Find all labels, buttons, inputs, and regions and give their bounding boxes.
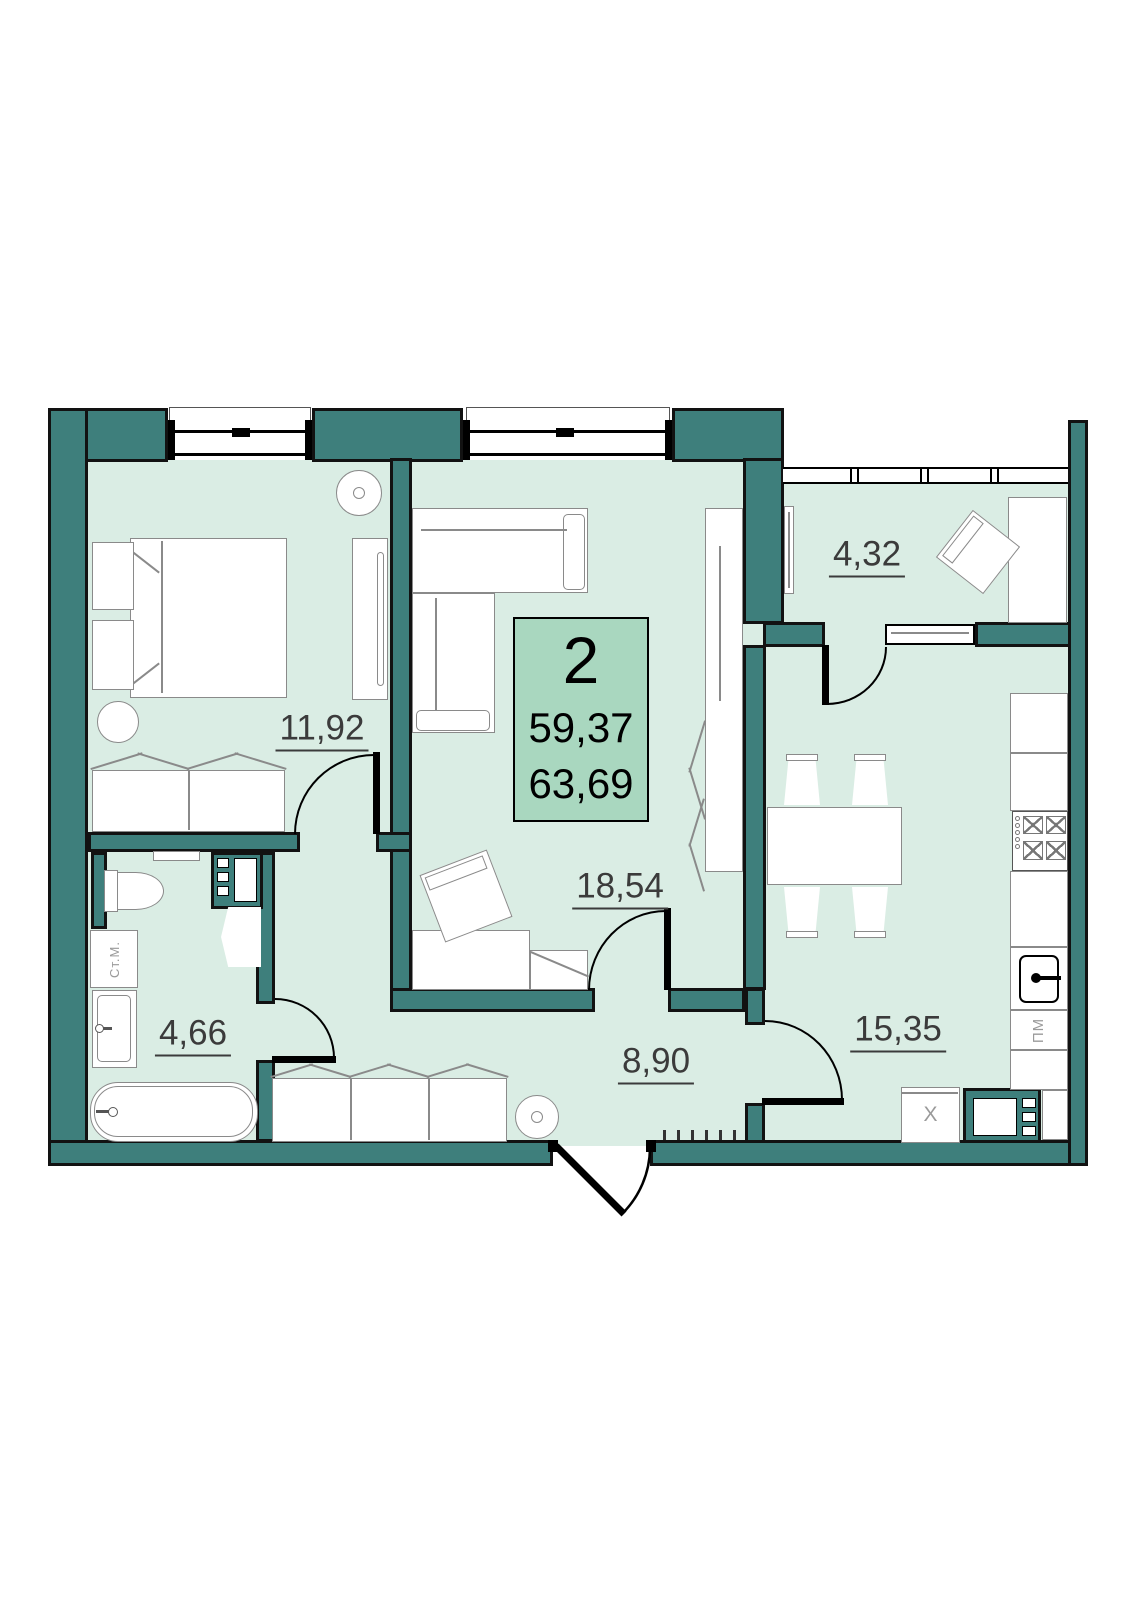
vent-opening [1022,1112,1036,1122]
dishwasher: ПМ [1010,1010,1068,1050]
outer-wall-bottom-left [48,1140,553,1166]
vent-shaft-kitchen [963,1088,1041,1143]
entrance-door-leaf [556,1146,624,1214]
outer-wall-bottom-right [650,1140,1087,1166]
detail-line [421,529,567,531]
glazing-mullion [920,467,922,484]
vent-opening [217,872,229,882]
sofa-horizontal [412,508,588,593]
window-jamb [463,420,470,460]
kitchen-cabinet [1042,1090,1068,1140]
entrance-jamb [548,1140,558,1152]
hallway-wardrobe [272,1078,507,1142]
bathtub-faucet [108,1107,118,1117]
wardrobe-chevron [92,752,188,770]
kitchen-cabinet [1010,1050,1068,1090]
detail-line [891,632,969,634]
nightstand [92,542,134,610]
desk-extension [530,950,588,990]
dining-chair [852,757,888,805]
desk [412,930,530,990]
nightstand [92,620,134,690]
glazing-mullion [927,467,929,484]
window-frame-line [175,453,305,456]
sink-faucet-stem [103,1027,112,1030]
total-area-value: 63,69 [528,763,633,805]
stove-burner [1023,841,1043,860]
sofa-armrest [416,710,490,731]
vent-panel [234,858,257,902]
threshold-tick [733,1130,736,1140]
stove-knob [1015,823,1020,828]
outer-wall-top-right [672,408,784,462]
wall-balcony-kitchen-left [763,622,825,647]
bedroom-door-leaf [373,752,380,834]
window-jamb [665,420,672,460]
apartment-info-box: 2 59,37 63,69 [513,617,649,822]
vent-opening [217,858,229,868]
area-label-bathroom: 4,66 [155,1016,231,1057]
window-center-tick [232,428,250,437]
vent-shaft-bathroom [211,852,263,909]
area-label-kitchen: 15,35 [850,1012,946,1053]
balcony-table [1008,497,1067,623]
detail-line [132,551,160,574]
rooms-count: 2 [563,627,600,693]
living-area-value: 59,37 [528,707,633,749]
chair-back-bar [854,931,886,938]
wardrobe-chevron [350,1060,428,1078]
washing-machine-label: Ст.М. [107,941,122,978]
threshold-tick [677,1130,680,1140]
kitchen-cabinet [1010,693,1068,753]
detail-line [132,662,160,685]
balcony-glazing [783,467,1068,484]
outer-wall-left [48,408,88,1165]
window-center-tick [556,428,574,437]
bedroom-stool [97,701,139,743]
vent-opening [1022,1098,1036,1108]
window-jamb [305,420,312,460]
detail-line [188,771,190,830]
towel-rail [153,851,200,861]
dining-chair [784,887,820,935]
glazing-mullion [997,467,999,484]
stove-knob [1015,816,1020,821]
living-window [463,420,672,460]
wall-bedroom-door-jamb [376,832,412,852]
bed [130,538,287,698]
bedroom-wardrobe [92,770,285,832]
entrance-jamb [646,1140,656,1152]
stove-knob [1015,830,1020,835]
hallway-pouf-center [531,1111,543,1123]
dishwasher-label: ПМ [1031,1017,1048,1042]
wall-living-bottom-right [668,988,745,1012]
glazing-mullion [990,467,992,484]
wardrobe-chevron [428,1060,507,1078]
living-wardrobe [705,508,743,872]
washing-machine: Ст.М. [90,930,138,988]
stove-knob [1015,844,1020,849]
threshold-tick [691,1130,694,1140]
wall-bedroom-living [390,458,412,1004]
kitchen-stove [1012,811,1068,871]
detail-line [435,598,437,710]
toilet-tank [104,870,118,912]
vent-opening [1022,1126,1036,1136]
sofa-armrest [563,514,585,590]
stove-burner [1046,841,1066,860]
bedroom-tv [377,552,384,686]
bathtub-faucet-stem [96,1110,109,1113]
fridge: X [901,1087,960,1143]
ceiling-lamp-center [353,487,365,499]
kitchen-balcony-window-sill [885,624,975,645]
vent-panel [973,1098,1017,1136]
detail-line [350,1079,352,1140]
wall-kitchen-hall-lower [745,1103,765,1143]
area-label-balcony: 4,32 [829,537,905,578]
sofa-vertical [412,593,495,733]
vent-opening [217,886,229,896]
fridge-label: X [923,1103,937,1127]
detail-line [902,1092,958,1094]
kitchen-cabinet [1010,871,1068,947]
detail-line [788,512,790,588]
threshold-tick [719,1130,722,1140]
window-frame-line [470,453,665,456]
stove-burner [1023,816,1043,834]
area-label-living: 18,54 [572,869,668,910]
shaft-access-panel [221,907,261,967]
detail-line [530,951,589,977]
bedroom-window [168,420,312,460]
wall-living-kitchen [743,645,766,990]
glazing-mullion [857,467,859,484]
area-label-hallway: 8,90 [618,1044,694,1085]
detail-line [161,541,163,693]
threshold-tick [705,1130,708,1140]
chair-back-bar [854,754,886,761]
area-label-bedroom: 11,92 [276,711,369,752]
dining-table [767,807,902,885]
wardrobe-chevron [188,752,285,770]
wall-balcony-kitchen-right [975,622,1071,647]
floor-plan-page: 2 59,37 63,69 Ст.М. [0,0,1131,1600]
outer-wall-right [1068,420,1088,1166]
window-jamb [168,420,175,460]
balcony-exterior [784,400,1068,467]
kitchen-cabinet [1010,753,1068,811]
detail-line [428,1079,430,1140]
outer-wall-top-mid [312,408,463,462]
stove-knob [1015,837,1020,842]
dining-chair [852,887,888,935]
wall-kitchen-hall-upper [745,988,765,1025]
entrance-door [538,1136,670,1242]
entrance-door-swing [622,1148,650,1214]
detail-line [719,546,721,701]
balcony-side-window [784,506,794,594]
kitchen-sink-faucet-stem [1039,976,1061,980]
wall-living-balcony [743,458,784,624]
chair-back-bar [786,754,818,761]
stove-burner [1046,816,1066,834]
wall-living-bottom-left [390,988,595,1012]
chair-back-bar [786,931,818,938]
wardrobe-chevron [687,800,705,890]
glazing-mullion [850,467,852,484]
wall-bedroom-bottom [88,832,300,852]
dining-chair [784,757,820,805]
